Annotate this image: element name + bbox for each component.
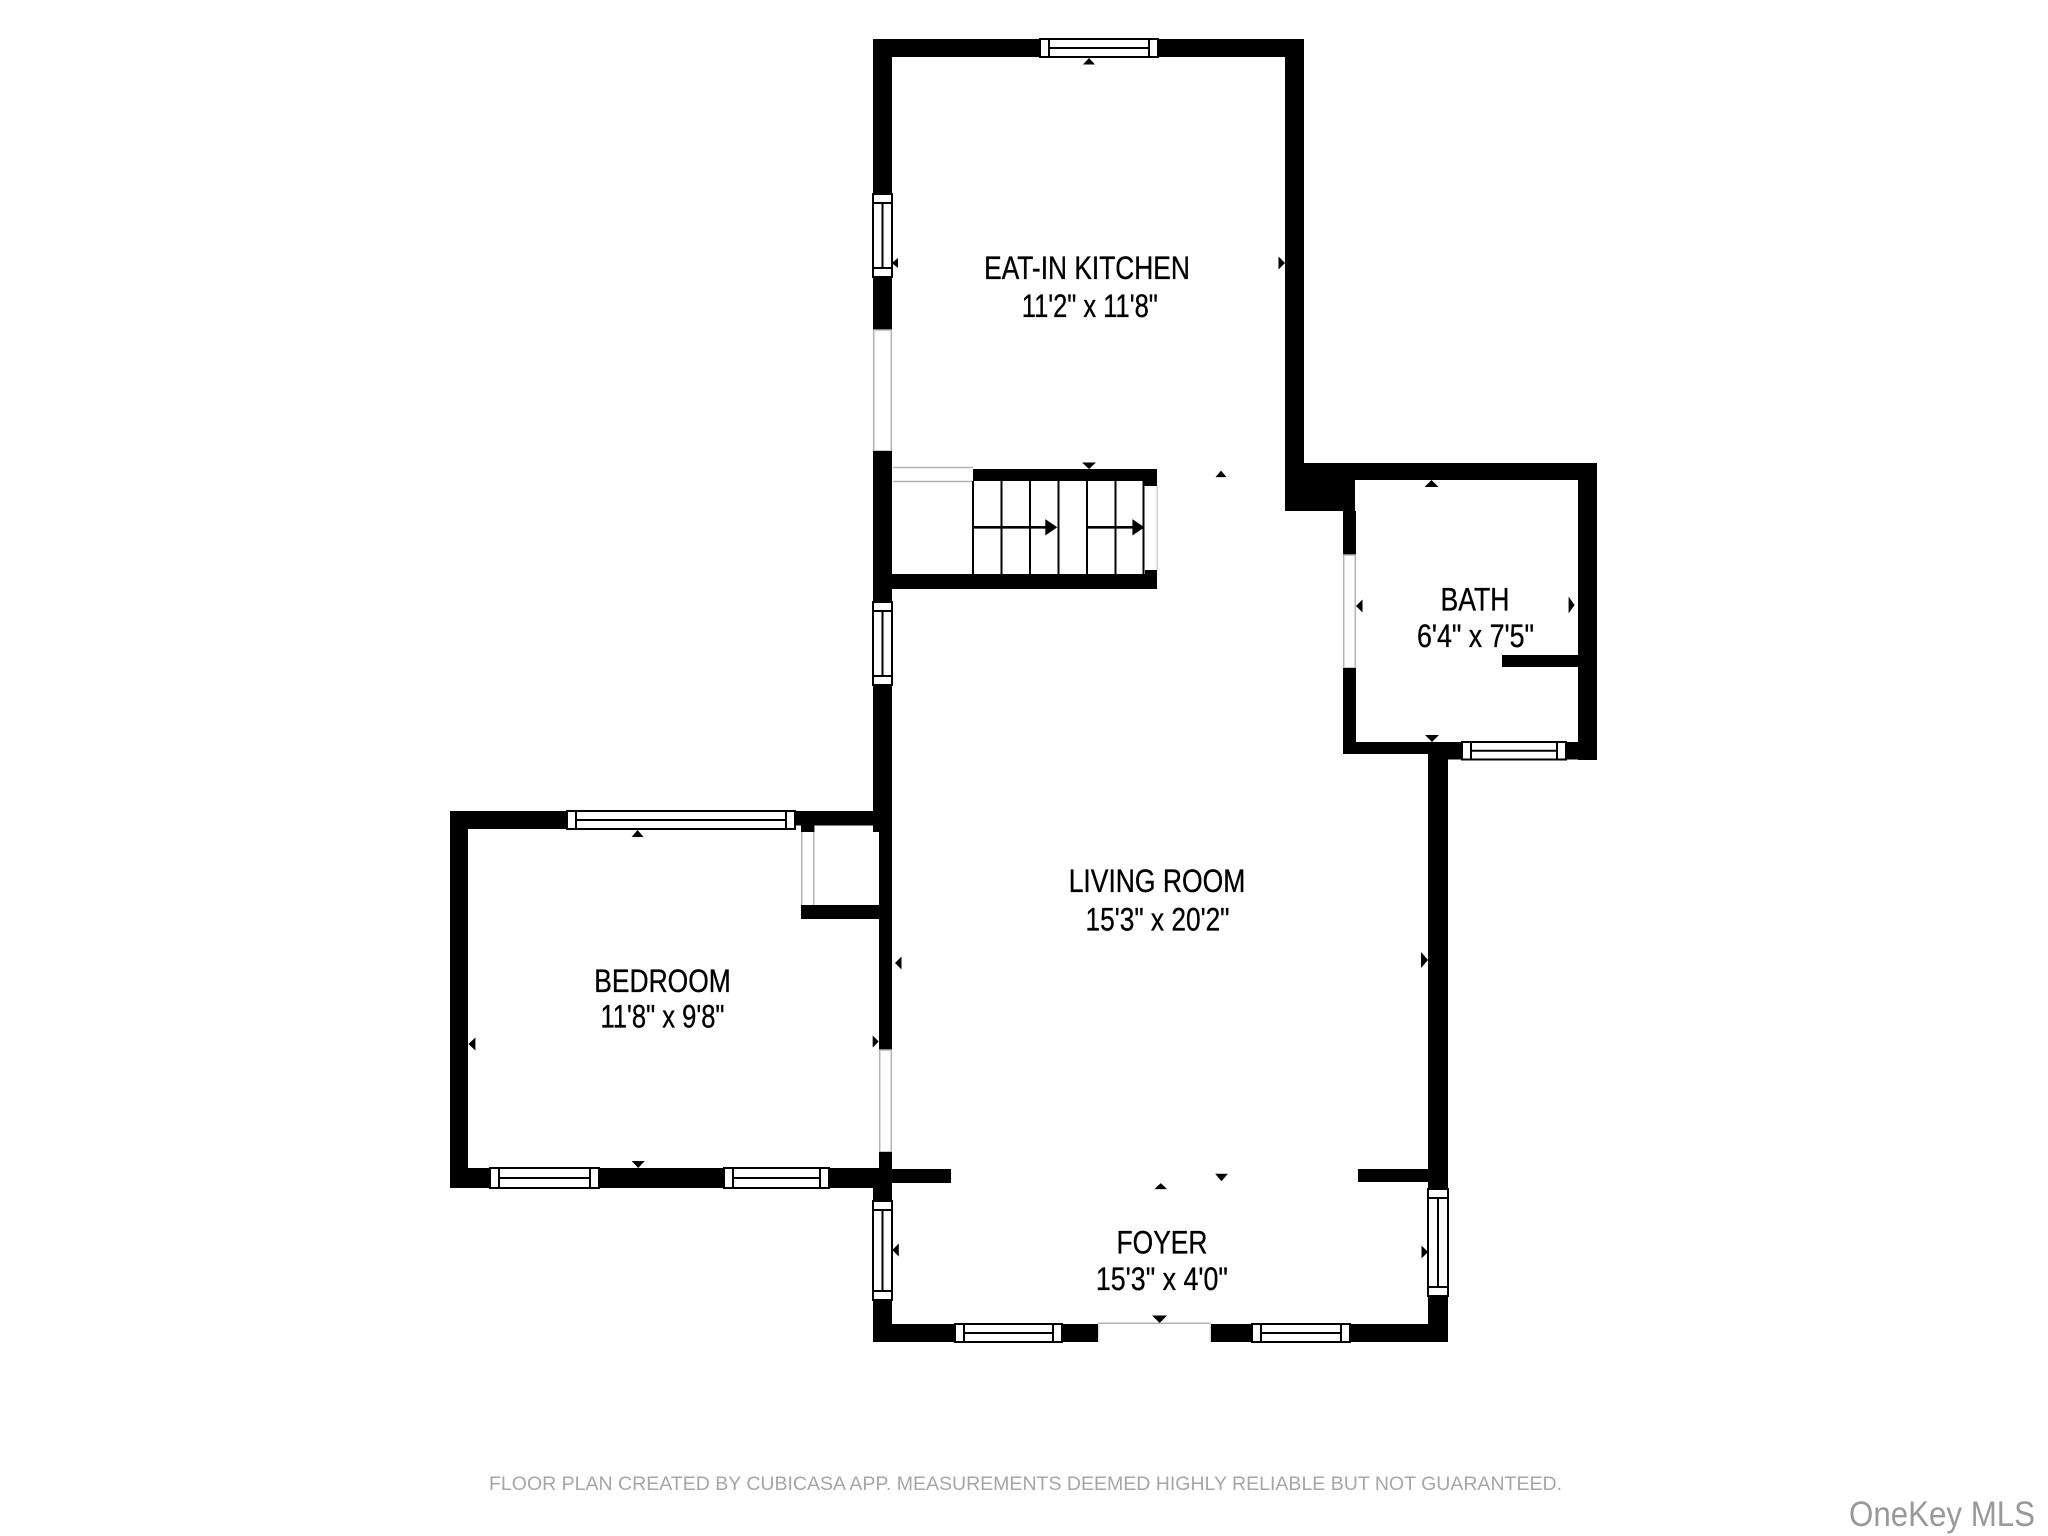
svg-text:LIVING ROOM: LIVING ROOM xyxy=(1069,863,1246,899)
svg-text:EAT-IN KITCHEN: EAT-IN KITCHEN xyxy=(984,250,1190,286)
svg-text:FOYER: FOYER xyxy=(1117,1225,1208,1261)
svg-text:6'4" x 7'5": 6'4" x 7'5" xyxy=(1417,618,1534,654)
svg-text:FLOOR PLAN CREATED BY CUBICASA: FLOOR PLAN CREATED BY CUBICASA APP. MEAS… xyxy=(489,1473,1562,1495)
svg-text:BATH: BATH xyxy=(1441,582,1510,618)
svg-text:OneKey MLS: OneKey MLS xyxy=(1849,1495,2035,1534)
svg-text:15'3" x 20'2": 15'3" x 20'2" xyxy=(1086,902,1230,938)
svg-text:11'8" x 9'8": 11'8" x 9'8" xyxy=(601,999,725,1035)
svg-text:15'3" x 4'0": 15'3" x 4'0" xyxy=(1096,1261,1228,1297)
svg-text:BEDROOM: BEDROOM xyxy=(594,963,731,999)
svg-text:11'2" x 11'8": 11'2" x 11'8" xyxy=(1022,288,1158,324)
